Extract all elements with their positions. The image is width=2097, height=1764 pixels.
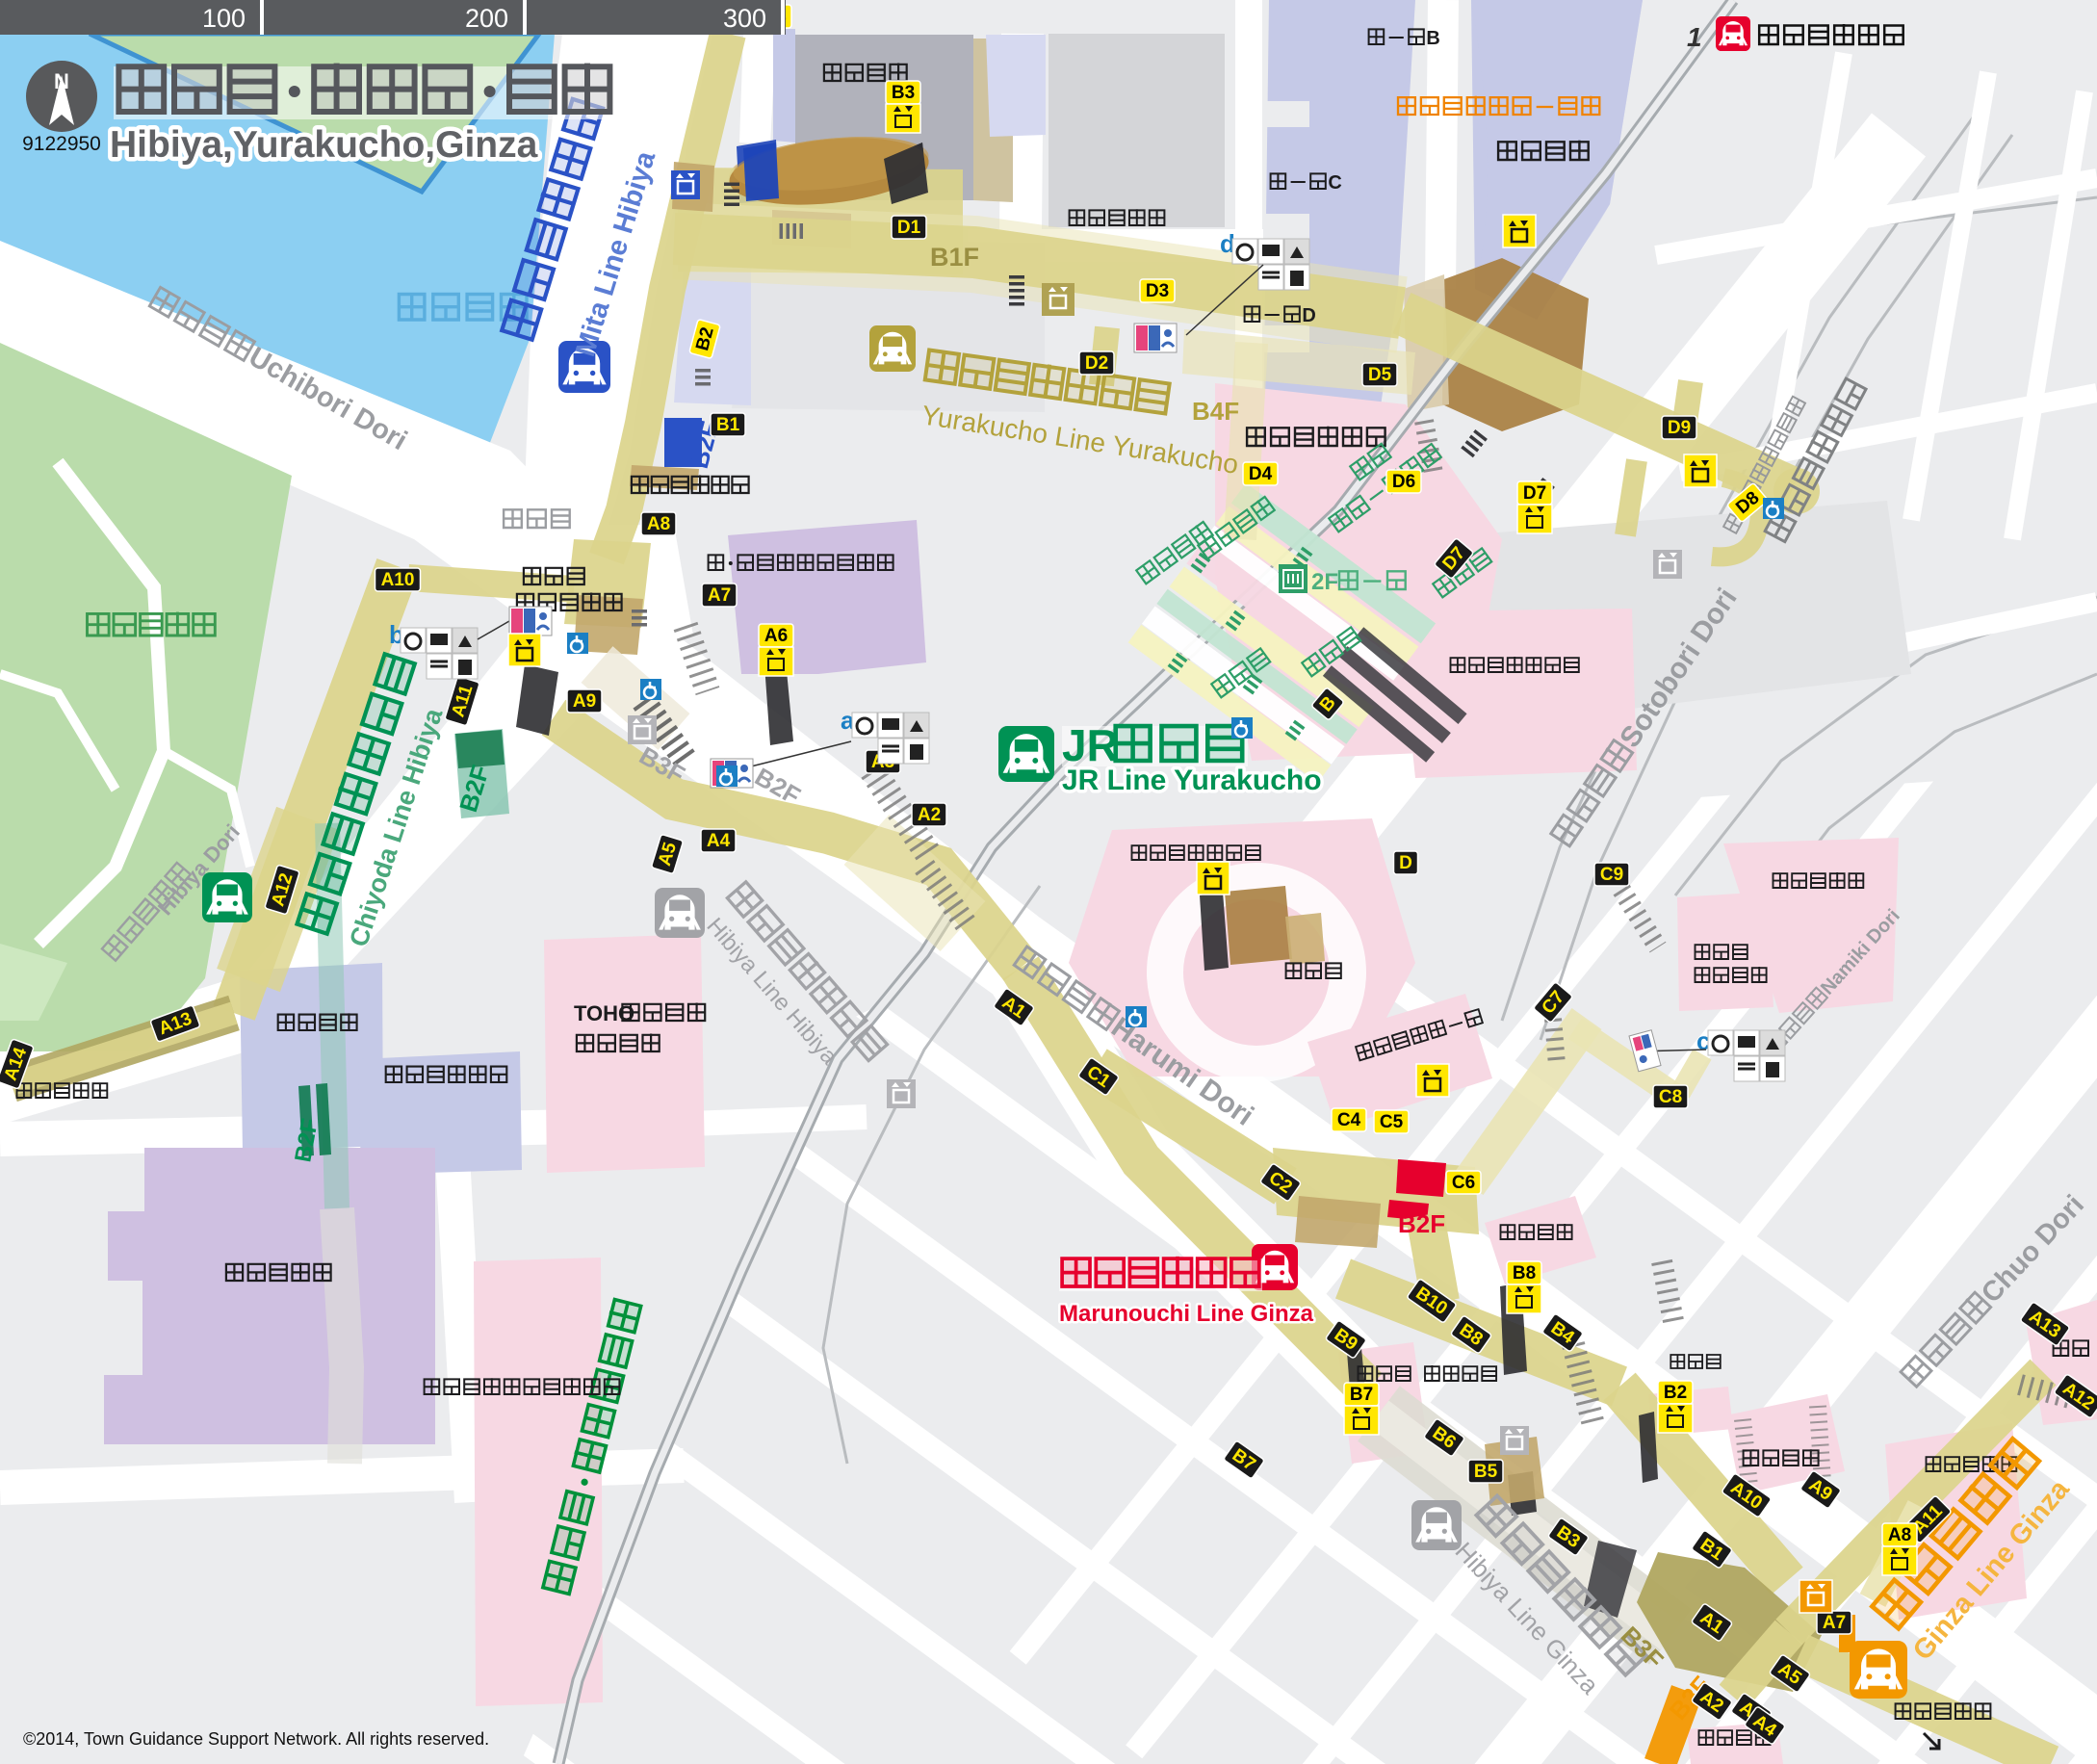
svg-text:D9: D9 [1668,418,1691,438]
svg-text:D5: D5 [1368,365,1392,385]
svg-text:C4: C4 [1337,1110,1361,1130]
svg-text:B7: B7 [1350,1385,1373,1405]
svg-text:D1: D1 [897,218,921,238]
svg-text:D: D [1302,305,1315,326]
svg-text:B1F: B1F [930,243,979,272]
svg-text:A2: A2 [918,805,941,825]
svg-text:1: 1 [1687,22,1702,52]
svg-text:A6: A6 [764,626,788,646]
svg-text:A8: A8 [647,514,670,534]
svg-text:B3: B3 [892,83,915,103]
svg-text:JR: JR [1062,720,1119,770]
svg-text:B: B [1426,28,1439,49]
svg-text:D6: D6 [1392,472,1415,492]
svg-text:A9: A9 [573,691,596,712]
svg-text:300: 300 [723,4,766,33]
svg-text:C8: C8 [1659,1087,1682,1107]
svg-text:A10: A10 [381,570,415,590]
svg-text:200: 200 [465,4,508,33]
svg-text:©2014, Town Guidance Support N: ©2014, Town Guidance Support Network. Al… [23,1729,489,1749]
svg-text:A8: A8 [1888,1525,1911,1545]
svg-text:B5: B5 [1474,1462,1498,1482]
svg-text:JR Line Yurakucho: JR Line Yurakucho [1062,765,1322,796]
svg-text:A7: A7 [1823,1613,1846,1633]
svg-text:D7: D7 [1523,483,1546,504]
svg-text:100: 100 [202,4,246,33]
svg-text:C6: C6 [1452,1173,1475,1193]
svg-text:D: D [1399,853,1412,873]
svg-text:9122950: 9122950 [22,133,101,155]
svg-text:B2F: B2F [1398,1209,1445,1238]
svg-text:2F: 2F [1311,569,1338,595]
svg-text:C9: C9 [1600,865,1623,885]
svg-text:B1: B1 [716,415,740,435]
svg-text:D4: D4 [1249,464,1273,484]
svg-text:B2: B2 [1664,1383,1687,1403]
svg-text:A4: A4 [707,831,731,851]
svg-text:D3: D3 [1146,281,1169,301]
svg-text:B8: B8 [1513,1263,1536,1284]
svg-text:Hibiya,Yurakucho,Ginza: Hibiya,Yurakucho,Ginza [110,124,538,166]
svg-text:B4F: B4F [1192,397,1239,426]
svg-text:C: C [1328,172,1341,194]
svg-text:Marunouchi Line Ginza: Marunouchi Line Ginza [1059,1301,1314,1327]
svg-text:A7: A7 [708,585,731,606]
svg-text:D2: D2 [1085,353,1108,374]
svg-text:C5: C5 [1380,1112,1404,1132]
svg-text:N: N [54,69,69,93]
